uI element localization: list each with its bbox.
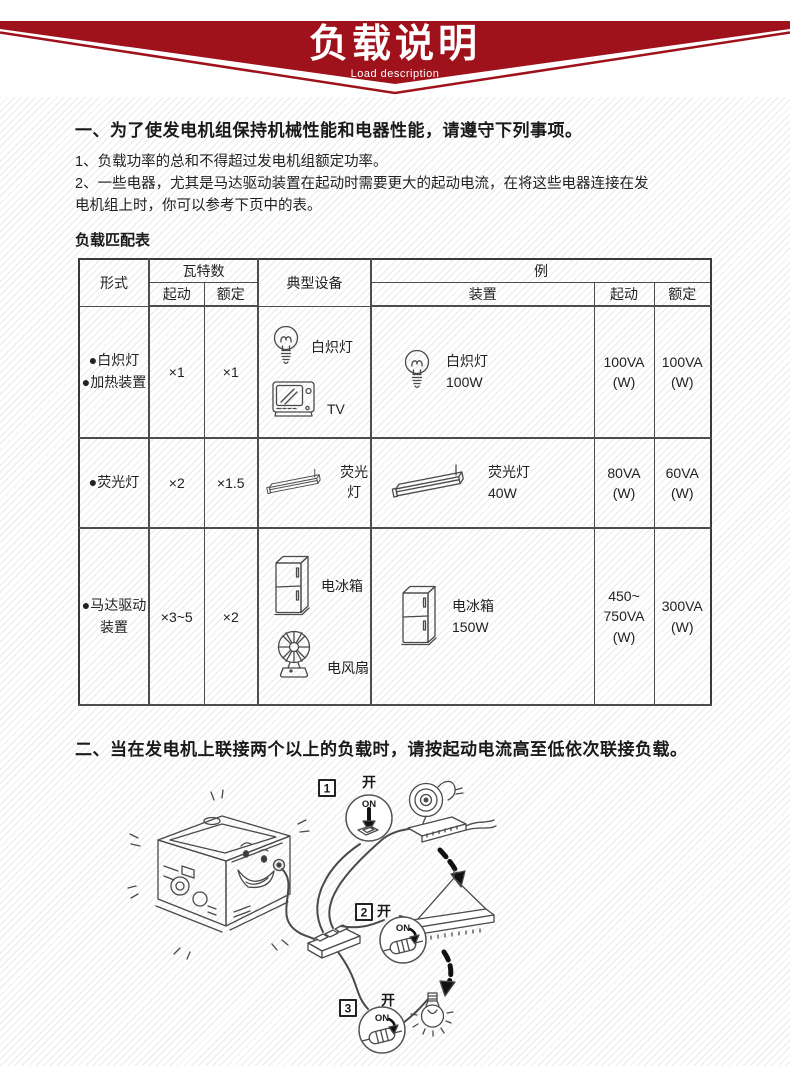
typical-tube-entry: 荧光灯 — [265, 462, 370, 504]
manual-page: 负载说明 Load description 一、为了使发电机组保持机械性能和电器… — [0, 0, 790, 1066]
typical-tube-label: 荧光灯 — [338, 462, 370, 504]
row2-typical-cell: 荧光灯 — [258, 438, 371, 528]
col-header-watts: 瓦特数 — [149, 259, 258, 282]
col-header-rated: 额定 — [204, 282, 258, 306]
row3-rated-factor: ×2 — [204, 528, 258, 705]
row1-typical-cell: 白炽灯 TV — [258, 306, 371, 438]
row2-ex-rated: 60VA (W) — [654, 438, 711, 528]
table-row-incandescent: ●白炽灯 ●加热装置 ×1 ×1 白炽灯 — [79, 306, 711, 438]
row2-start-factor: ×2 — [149, 438, 204, 528]
row1-rated-factor: ×1 — [204, 306, 258, 438]
section1-item1: 1、负载功率的总和不得超过发电机组额定功率。 — [75, 151, 735, 173]
tv-icon — [271, 379, 317, 419]
step1-power-label: 开 — [362, 774, 376, 790]
section1-body: 1、负载功率的总和不得超过发电机组额定功率。 2、一些电器，尤其是马达驱动装置在… — [75, 151, 735, 217]
row3-ex-rated: 300VA (W) — [654, 528, 711, 705]
page-subtitle: Load description — [0, 68, 790, 80]
connection-illustration: 1 开 ON 2 开 ON 3 开 ON — [122, 766, 542, 1064]
typical-bulb-entry: 白炽灯 — [271, 325, 370, 371]
row1-start-factor: ×1 — [149, 306, 204, 438]
typical-tv-label: TV — [327, 401, 345, 419]
section1-item2: 2、一些电器，尤其是马达驱动装置在起动时需要更大的起动电流，在将这些电器连接在发… — [75, 173, 735, 217]
load-matching-table: 形式 瓦特数 典型设备 例 起动 额定 装置 起动 额定 ●白炽灯 ●加热装置 … — [78, 258, 712, 706]
col-header-example: 例 — [371, 259, 711, 282]
typical-bulb-label: 白炽灯 — [311, 337, 353, 359]
step1-on-label: ON — [362, 799, 376, 810]
header-row-1: 形式 瓦特数 典型设备 例 — [79, 259, 711, 282]
row2-type: ●荧光灯 — [79, 438, 149, 528]
fluorescent-tube-icon — [265, 462, 328, 504]
order-arrow-1 — [440, 850, 458, 876]
step3-number: 3 — [345, 1002, 352, 1016]
row2-ex-start: 80VA (W) — [594, 438, 654, 528]
generator-cable — [282, 869, 314, 939]
table-row-motor: ●马达驱动 装置 ×3~5 ×2 — [79, 528, 711, 705]
incandescent-bulb-icon — [271, 325, 301, 371]
fluorescent-tube-icon — [390, 462, 474, 504]
generator — [156, 816, 290, 932]
row1-example-device: 白炽灯 100W — [371, 306, 594, 438]
typical-fridge-entry: 电冰箱 — [271, 554, 370, 620]
order-arrow-2 — [444, 952, 451, 983]
row1-ex-rated: 100VA (W) — [654, 306, 711, 438]
row3-ex-start: 450~ 750VA (W) — [594, 528, 654, 705]
hanging-bulb — [411, 993, 453, 1036]
row2-example-device: 荧光灯 40W — [371, 438, 594, 528]
col-header-device: 装置 — [371, 282, 594, 306]
fan-icon — [271, 628, 317, 680]
typical-tv-entry: TV — [271, 379, 370, 419]
col-header-typical: 典型设备 — [258, 259, 371, 306]
page-title: 负载说明 — [0, 25, 790, 64]
order-arrow-2-head — [440, 981, 455, 996]
example-device-label: 白炽灯 100W — [446, 351, 488, 393]
step2-number: 2 — [361, 906, 368, 920]
example-device-label: 荧光灯 40W — [488, 462, 530, 504]
typical-fan-label: 电风扇 — [327, 658, 369, 680]
row3-start-factor: ×3~5 — [149, 528, 204, 705]
row1-ex-start: 100VA (W) — [594, 306, 654, 438]
typical-fridge-label: 电冰箱 — [321, 576, 363, 598]
col-header-ex-rated: 额定 — [654, 282, 711, 306]
table-row-fluorescent: ●荧光灯 ×2 ×1.5 — [79, 438, 711, 528]
col-header-ex-start: 起动 — [594, 282, 654, 306]
row3-typical-cell: 电冰箱 电风扇 — [258, 528, 371, 705]
section1-heading: 一、为了使发电机组保持机械性能和电器性能，请遵守下列事项。 — [75, 116, 735, 141]
row1-type: ●白炽灯 ●加热装置 — [79, 306, 149, 438]
step3-power-label: 开 — [381, 992, 395, 1008]
col-header-type: 形式 — [79, 259, 149, 306]
header-row-2: 起动 额定 装置 起动 额定 — [79, 282, 711, 306]
fridge-icon — [398, 584, 438, 650]
row3-example-device: 电冰箱 150W — [371, 528, 594, 705]
vibration-marks — [128, 790, 309, 959]
step1-number: 1 — [324, 782, 331, 796]
row3-type: ●马达驱动 装置 — [79, 528, 149, 705]
power-strip — [308, 925, 360, 958]
incandescent-bulb-icon — [402, 349, 432, 395]
step2-power-label: 开 — [377, 903, 391, 919]
example-device-label: 电冰箱 150W — [452, 596, 494, 638]
typical-fan-entry: 电风扇 — [271, 628, 370, 680]
spotlight-lamp — [408, 781, 496, 842]
load-table-caption: 负载匹配表 — [75, 229, 150, 250]
fridge-icon — [271, 554, 311, 620]
row2-rated-factor: ×1.5 — [204, 438, 258, 528]
section2-heading: 二、当在发电机上联接两个以上的负载时，请按起动电流高至低依次联接负载。 — [75, 735, 755, 760]
step2-on-label: ON — [396, 923, 410, 934]
step3-on-label: ON — [375, 1013, 389, 1024]
col-header-start: 起动 — [149, 282, 204, 306]
